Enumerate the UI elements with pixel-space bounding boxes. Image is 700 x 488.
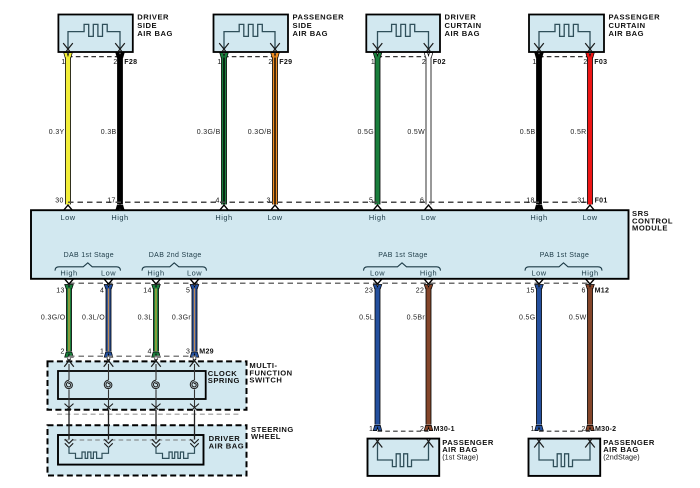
svg-text:2: 2 [268,59,272,66]
svg-text:0.3Gr: 0.3Gr [172,315,192,322]
svg-text:High: High [369,213,386,222]
svg-text:DAB 2nd Stage: DAB 2nd Stage [149,252,202,259]
svg-text:Low: Low [421,213,436,222]
svg-text:0.3O/B: 0.3O/B [248,129,272,136]
svg-text:2: 2 [420,426,424,433]
svg-text:14: 14 [143,287,152,294]
svg-text:0.5B: 0.5B [520,129,536,136]
svg-text:31: 31 [577,198,586,205]
svg-text:13: 13 [56,287,65,294]
svg-text:(2ndStage): (2ndStage) [603,452,640,461]
svg-text:5: 5 [186,287,190,294]
svg-text:High: High [215,213,232,222]
svg-text:High: High [581,269,598,278]
svg-text:PAB 1st Stage: PAB 1st Stage [378,252,428,259]
svg-text:17: 17 [107,198,116,205]
svg-text:0.5G: 0.5G [519,315,536,322]
svg-text:22: 22 [416,287,425,294]
svg-text:(1st Stage): (1st Stage) [442,452,478,461]
svg-text:30: 30 [55,198,64,205]
svg-text:0.3B: 0.3B [101,129,117,136]
svg-text:Low: Low [370,269,385,278]
svg-text:AIR BAG: AIR BAG [293,29,329,38]
svg-text:High: High [530,213,547,222]
svg-text:F02: F02 [433,58,446,66]
svg-text:M30-2: M30-2 [595,425,616,433]
svg-text:High: High [420,269,437,278]
svg-text:SPRING: SPRING [208,376,240,385]
svg-text:0.3L/O: 0.3L/O [82,315,105,322]
svg-text:Low: Low [531,269,546,278]
svg-text:5: 5 [369,198,373,205]
svg-text:High: High [111,213,128,222]
svg-text:High: High [60,269,77,278]
svg-text:AIR BAG: AIR BAG [209,441,245,450]
svg-text:PAB 1st Stage: PAB 1st Stage [540,252,590,259]
svg-text:0.3G/O: 0.3G/O [41,315,66,322]
svg-text:SWITCH: SWITCH [249,376,282,385]
svg-text:M12: M12 [595,286,610,294]
svg-text:AIR BAG: AIR BAG [445,29,481,38]
svg-text:AIR BAG: AIR BAG [609,29,645,38]
svg-text:3: 3 [186,349,190,356]
svg-text:F28: F28 [124,58,137,66]
svg-text:Low: Low [187,269,202,278]
svg-text:DAB 1st Stage: DAB 1st Stage [64,252,114,259]
svg-text:Low: Low [267,213,282,222]
svg-text:6: 6 [420,198,424,205]
svg-text:AIR BAG: AIR BAG [137,29,173,38]
svg-text:Low: Low [101,269,116,278]
svg-text:2: 2 [582,426,586,433]
svg-text:1: 1 [531,426,535,433]
svg-text:MODULE: MODULE [632,224,668,233]
svg-text:0.5L: 0.5L [359,315,374,322]
svg-text:18: 18 [526,198,535,205]
svg-text:1: 1 [532,59,536,66]
svg-text:High: High [147,269,164,278]
svg-text:15: 15 [526,287,535,294]
svg-text:0.3Y: 0.3Y [49,129,65,136]
svg-text:0.3G/B: 0.3G/B [197,129,221,136]
svg-text:1: 1 [61,59,65,66]
svg-text:3: 3 [267,198,271,205]
svg-text:6: 6 [582,287,586,294]
svg-text:M29: M29 [199,348,214,356]
svg-text:0.5G: 0.5G [358,129,375,136]
svg-text:F03: F03 [594,58,607,66]
svg-text:0.5Br: 0.5Br [407,315,426,322]
svg-text:F01: F01 [595,197,608,205]
svg-text:Low: Low [60,213,75,222]
svg-text:WHEEL: WHEEL [251,432,281,441]
svg-text:1: 1 [369,426,373,433]
svg-text:2: 2 [113,59,117,66]
svg-text:4: 4 [216,198,220,205]
svg-text:4: 4 [100,287,104,294]
svg-text:0.3L: 0.3L [138,315,153,322]
svg-text:2: 2 [422,59,426,66]
svg-text:Low: Low [582,213,597,222]
svg-text:F29: F29 [279,58,292,66]
svg-text:1: 1 [371,59,375,66]
svg-text:0.5R: 0.5R [570,129,586,136]
svg-text:2: 2 [61,349,65,356]
svg-text:4: 4 [148,349,152,356]
svg-text:0.5W: 0.5W [407,129,425,136]
svg-text:2: 2 [583,59,587,66]
svg-text:M30-1: M30-1 [434,425,455,433]
svg-text:0.5W: 0.5W [569,315,587,322]
svg-text:23: 23 [365,287,374,294]
svg-text:1: 1 [100,349,104,356]
svg-text:1: 1 [217,59,221,66]
